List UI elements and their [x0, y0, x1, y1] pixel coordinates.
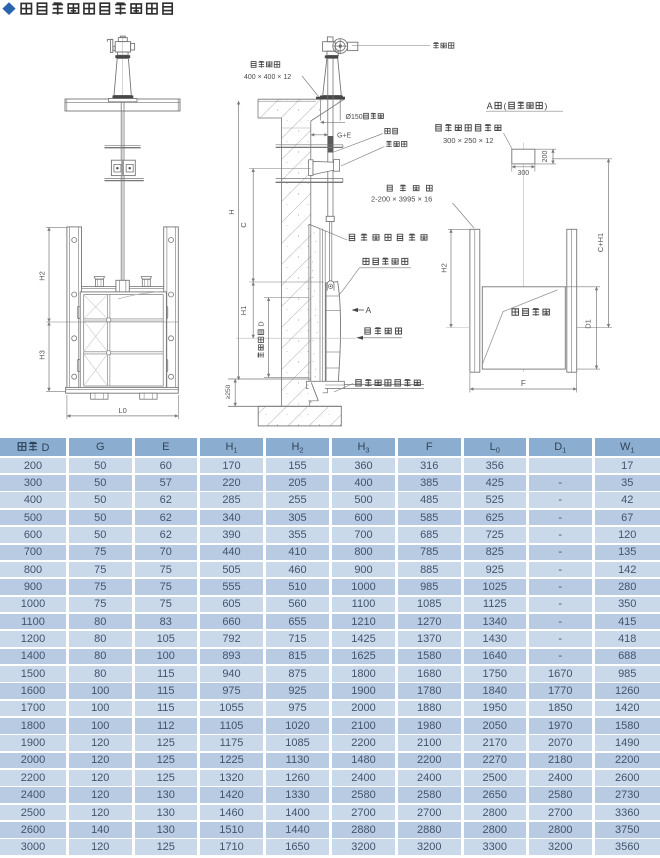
svg-text:H2: H2 — [440, 263, 449, 273]
svg-text:2-200 × 3995 × 16: 2-200 × 3995 × 16 — [371, 195, 432, 204]
svg-text:H1: H1 — [239, 306, 248, 316]
svg-text:200: 200 — [542, 151, 549, 163]
svg-text:F: F — [521, 379, 526, 388]
svg-text:(: ( — [504, 101, 507, 111]
svg-text:C: C — [239, 222, 248, 228]
svg-text:): ) — [545, 101, 548, 111]
svg-text:300: 300 — [517, 170, 529, 177]
svg-text:A: A — [366, 305, 372, 315]
svg-text:G+E: G+E — [337, 133, 352, 140]
svg-text:400 × 400 × 12: 400 × 400 × 12 — [244, 74, 291, 81]
svg-text:L0: L0 — [118, 406, 126, 415]
svg-text:H3: H3 — [38, 350, 47, 360]
svg-text:H: H — [227, 209, 236, 214]
svg-text:≥250: ≥250 — [225, 384, 232, 399]
svg-text:H2: H2 — [38, 271, 47, 281]
svg-text:D: D — [259, 321, 266, 326]
svg-text:C+H1: C+H1 — [596, 233, 605, 252]
svg-text:Ø150: Ø150 — [346, 114, 363, 121]
svg-text:300 × 250 × 12: 300 × 250 × 12 — [443, 136, 493, 145]
svg-text:A: A — [487, 101, 493, 111]
